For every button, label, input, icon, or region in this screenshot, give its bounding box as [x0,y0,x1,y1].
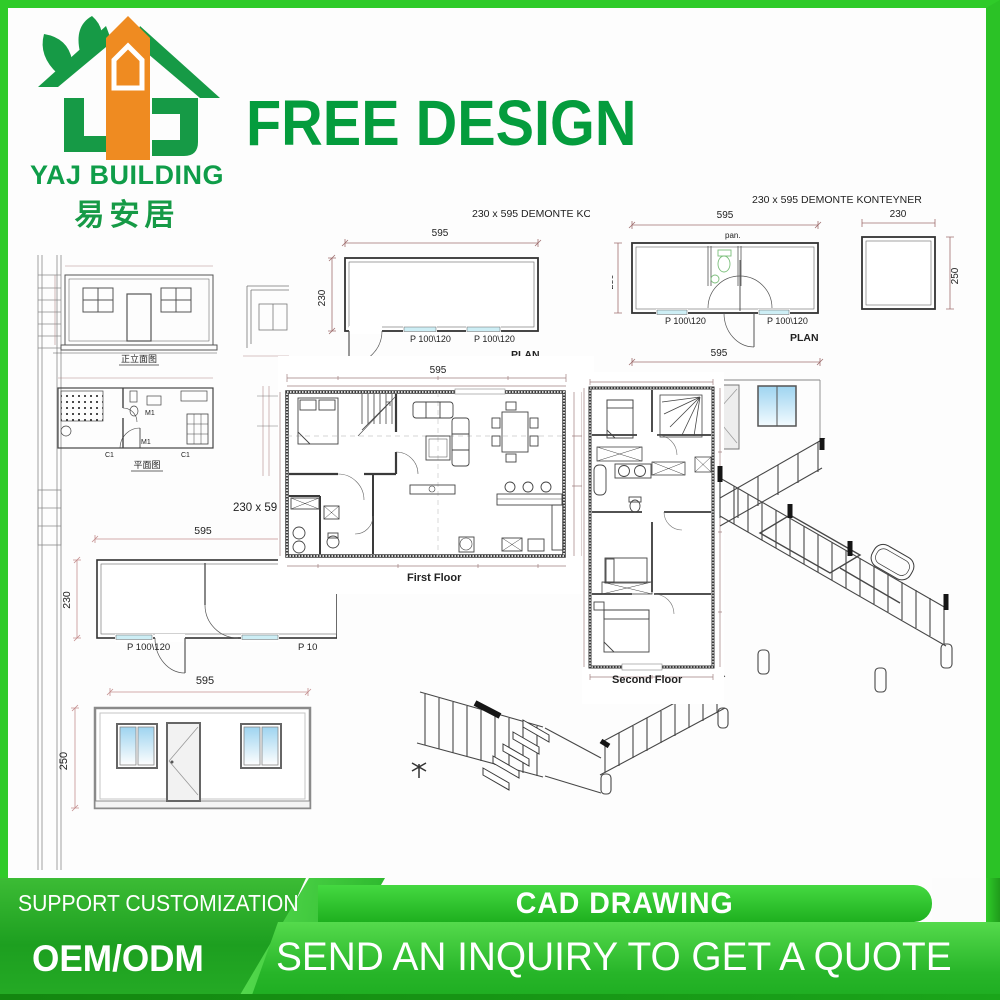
dim-width-label: 595 [432,228,449,239]
dim-height-label: 230 [612,274,615,289]
plan-m1-label: M1 [141,439,151,446]
brand-name: YAJ BUILDING [22,160,232,191]
banner-corner-frame [986,878,1000,922]
dim-width-label: 595 [196,675,214,687]
door-size-label: P 100\120 [410,334,451,344]
banner-corner-gap [932,878,986,922]
yaj-logo-icon [28,12,228,164]
top-mid-plan-drawing: 230 x 595 DEMONTE KONT 595 230 P 100\120… [318,198,590,370]
dim-width-label: 595 [717,210,734,221]
deck-structure [720,438,952,692]
plan-m1-label: M1 [145,410,155,417]
small-elevation [53,266,217,353]
small-plan [58,378,213,448]
first-floor-plan-drawing: 595 [278,356,594,594]
plan-caption: PLAN [790,332,819,344]
elevation-label: 正立面图 [121,353,157,364]
dim-height-label: 230 [61,591,73,609]
hidden-plan-title: 230 x 59 [233,502,281,514]
dark-posts [720,438,946,610]
support-customization-label: SUPPORT CUSTOMIZATION [18,890,299,917]
dim-width-label: 595 [430,365,447,376]
plant-symbol-icon [412,763,426,778]
inquiry-label: SEND AN INQUIRY TO GET A QUOTE [276,922,952,993]
dim-width-label: 595 [194,525,212,537]
promo-banner: CAD DRAWING SEND AN INQUIRY TO GET A QUO… [0,878,1000,1000]
oem-odm-label: OEM/ODM [32,938,204,980]
cad-drawing-ribbon: CAD DRAWING [318,885,932,922]
dim-side-width-label: 230 [890,209,907,220]
container-elevation [95,708,310,808]
leaf-icon [43,16,102,78]
top-right-plan-drawing: 230 x 595 DEMONTE KONTEYNER 595 230 230 … [612,190,967,370]
promo-image: YAJ BUILDING 易安居 FREE DESIGN 正立面图 [0,0,1000,1000]
drawing-title: 230 x 595 DEMONTE KONTEYNER [752,194,922,206]
brand-chinese-name: 易安居 [22,190,232,234]
stairs [483,720,549,790]
door-size-label: P 100\120 [474,334,515,344]
cad-drawing-label: CAD DRAWING [516,885,734,922]
dark-beam [475,703,500,716]
pan-label: pan. [725,231,741,240]
first-floor-label: First Floor [407,572,461,584]
house-icon [38,16,220,160]
second-floor-label: Second Floor [612,674,682,686]
dim-side-height-label: 250 [950,267,961,284]
plan-body [345,258,538,364]
plan-c1-label: C1 [105,452,114,459]
door-size-label: P 100\120 [767,316,808,326]
drawing-title: 230 x 595 DEMONTE KONT [472,208,590,220]
plan-label: 平面图 [133,460,160,470]
door-size-label: P 100\120 [665,316,706,326]
inquiry-ribbon: SEND AN INQUIRY TO GET A QUOTE [244,922,1000,995]
plan-body [632,237,935,347]
isometric-right-drawing [700,438,967,708]
banner-bottom-strip [0,994,1000,1000]
dim-height-label: 230 [318,289,328,306]
headline: FREE DESIGN [246,86,636,160]
bottom-left-elevation-drawing: 595 250 [55,666,337,866]
door-size-label: P 10 [298,642,317,653]
dim-height-label: 250 [58,752,70,770]
plan-c1-label: C1 [181,452,190,459]
door-size-label: P 100\120 [127,642,170,653]
